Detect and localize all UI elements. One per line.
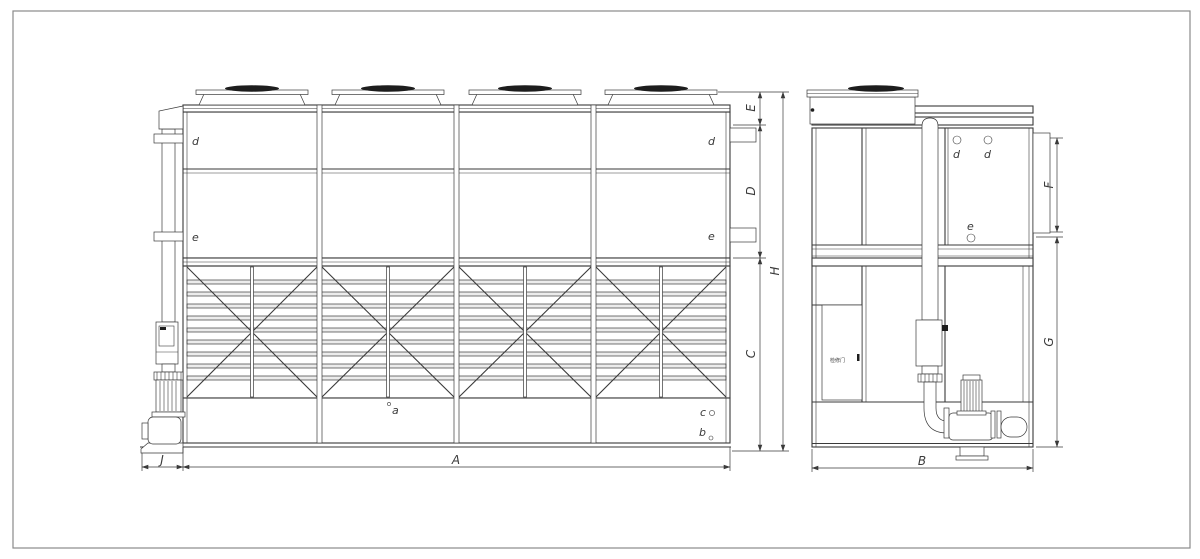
- pipe: [162, 129, 175, 322]
- door-handle-icon: [857, 354, 860, 361]
- discharge-flange: [991, 411, 995, 438]
- fan-unit: [196, 85, 308, 105]
- bolt-icon: [811, 108, 815, 112]
- pipe-coupling: [918, 374, 942, 382]
- pump-volute: [949, 413, 993, 440]
- label-d2: d: [984, 148, 992, 161]
- label-d1: d: [953, 148, 961, 161]
- side-view: 检修门 d d e: [807, 85, 1063, 472]
- discharge-pipe: [1001, 417, 1027, 437]
- dim-label-C: C: [744, 349, 758, 358]
- suction-flange: [944, 408, 949, 438]
- front-riser-pipe: [142, 106, 185, 444]
- door-panel: [822, 305, 862, 400]
- motor-flange: [957, 411, 986, 415]
- dim-label-G: G: [1042, 337, 1056, 346]
- label-d-left: d: [192, 135, 200, 148]
- basin-skirt: [141, 443, 183, 453]
- label-e-right: e: [708, 230, 715, 243]
- side-fan-unit: [807, 85, 918, 124]
- door-label: 检修门: [830, 357, 845, 364]
- dim-label-A: A: [451, 453, 460, 467]
- dim-label-D: D: [744, 186, 758, 195]
- fan-unit: [469, 85, 581, 105]
- front-view: d e d e a c b: [140, 85, 789, 471]
- dim-label-J: J: [158, 453, 164, 467]
- front-basin: [140, 398, 731, 453]
- fan-unit: [605, 85, 717, 105]
- dim-label-H: H: [768, 266, 782, 275]
- label-e-left: e: [192, 231, 199, 244]
- valve-actuator: [942, 325, 948, 331]
- pedestal-base: [956, 456, 988, 460]
- label-a: a: [392, 404, 399, 417]
- dim-label-E: E: [744, 104, 758, 112]
- pump-pedestal: [960, 447, 984, 456]
- label-e: e: [967, 220, 974, 233]
- pipe-bracket: [159, 106, 183, 129]
- pump-volute: [148, 417, 181, 444]
- cooling-tower-drawing: d e d e a c b: [0, 0, 1200, 559]
- nozzle-e: [730, 228, 756, 242]
- pipe-valve: [916, 320, 942, 366]
- front-pump-motor: [156, 380, 181, 412]
- pipe-clamp-top: [154, 134, 183, 143]
- pump-motor: [961, 375, 982, 412]
- label-c: c: [700, 406, 706, 419]
- label-d-right: d: [708, 135, 716, 148]
- discharge-flange: [997, 411, 1001, 438]
- dim-label-B: B: [918, 454, 926, 468]
- front-fan-units: [196, 85, 717, 105]
- top-band: [913, 106, 1033, 113]
- pipe-clamp-bottom: [154, 232, 183, 241]
- pipe-coupling: [154, 372, 183, 380]
- nozzle-d: [730, 128, 756, 142]
- drawing-canvas: d e d e a c b: [0, 0, 1200, 559]
- pump-suction-flange: [142, 423, 148, 439]
- dim-label-F: F: [1042, 180, 1056, 188]
- pump-flange: [152, 412, 185, 417]
- valve-box: [156, 322, 178, 364]
- fan-unit: [332, 85, 444, 105]
- label-b: b: [699, 426, 706, 439]
